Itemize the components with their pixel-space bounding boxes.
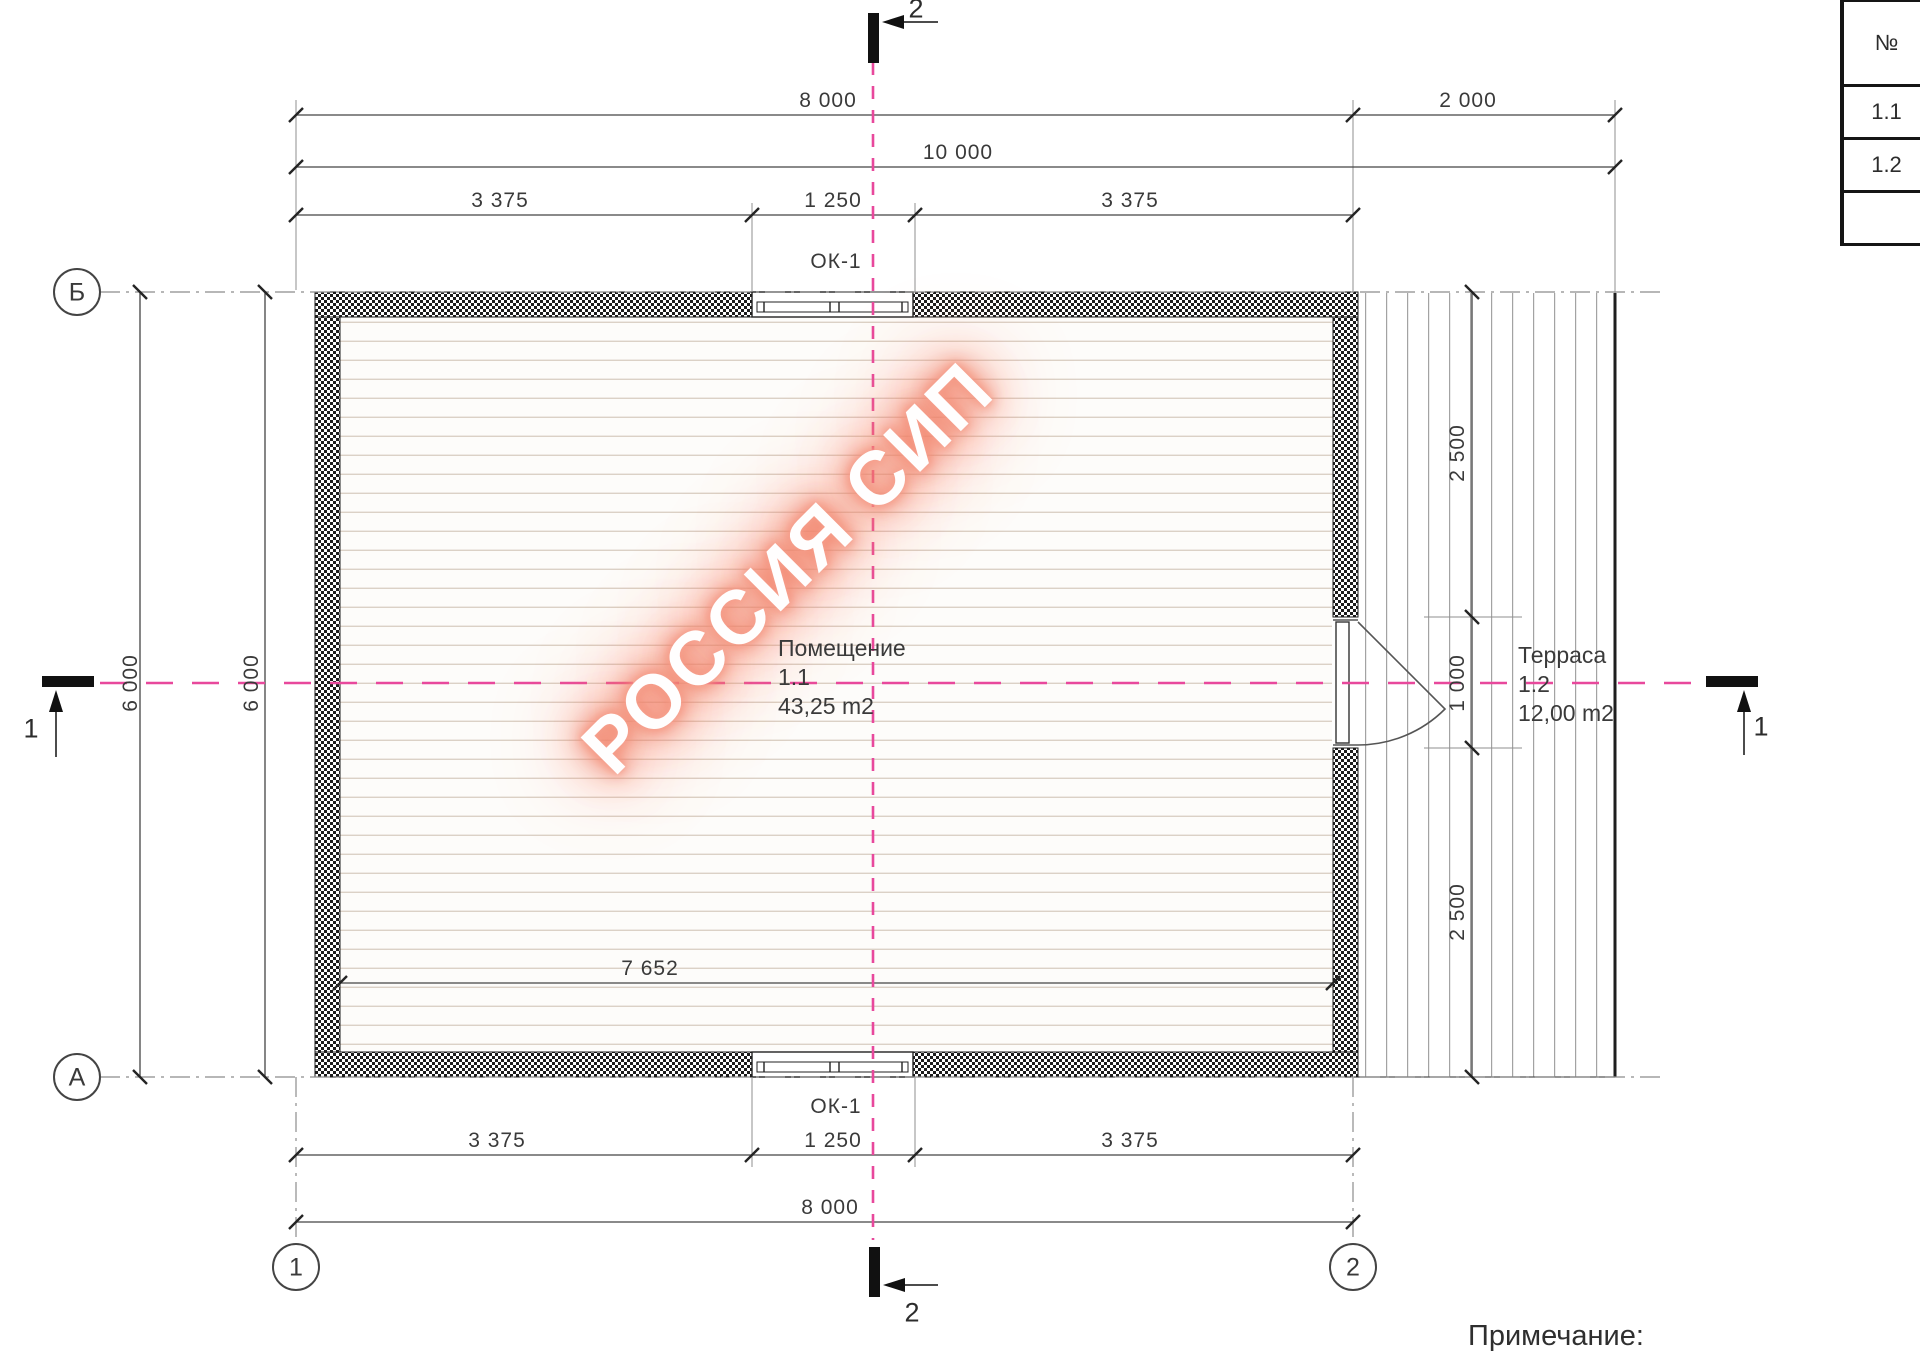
section-label-2-bottom: 2 [904,1298,919,1329]
section-label-1-left: 1 [23,714,38,745]
dim-top-8000: 8 000 [799,89,857,113]
dim-top-3375-right: 3 375 [1101,189,1159,213]
dim-interior-7652: 7 652 [621,957,679,981]
window-top [752,292,913,317]
window-bottom [752,1052,913,1077]
spec-table-row-2: 1.2 [1844,140,1920,193]
dim-top-3375-left: 3 375 [471,189,529,213]
axis-label-a: А [69,1064,86,1093]
dim-top-10000: 10 000 [923,141,993,165]
dim-top-1250: 1 250 [804,189,862,213]
note-heading: Примечание: [1468,1320,1644,1353]
section-label-1-right: 1 [1753,712,1768,743]
axis-label-1: 1 [289,1254,303,1283]
room-terrace-number: 1.2 [1518,670,1614,699]
axis-label-2: 2 [1346,1254,1360,1283]
dim-left-6000-outer: 6 000 [119,654,143,712]
spec-table-row-1: 1.1 [1844,87,1920,140]
axis-label-b: Б [69,279,85,308]
spec-table: № 1.1 1.2 [1840,0,1920,246]
dim-left-6000-inner: 6 000 [240,654,264,712]
section-marker-1-left [42,676,94,757]
dim-top-2000: 2 000 [1439,89,1497,113]
window-tag-top: ОК-1 [810,250,861,274]
spec-table-row-empty [1844,193,1920,246]
spec-table-row-2-text: 1.2 [1871,152,1902,178]
dim-bottom-8000: 8 000 [801,1196,859,1220]
window-tag-bottom: ОК-1 [810,1095,861,1119]
dim-bottom-3375-left: 3 375 [468,1129,526,1153]
dim-right-2500-top: 2 500 [1446,424,1470,482]
room-main-name: Помещение [778,634,906,663]
spec-table-header-text: № [1875,30,1899,56]
section-marker-1-right [1706,676,1758,755]
room-main-area: 43,25 m2 [778,692,906,721]
dim-right-1000: 1 000 [1446,654,1470,712]
dim-bottom-3375-right: 3 375 [1101,1129,1159,1153]
room-label-terrace: Терраса 1.2 12,00 m2 [1518,641,1614,728]
section-marker-2-bottom [869,1247,938,1297]
floor-plan-drawing [0,0,1920,1358]
room-terrace-name: Терраса [1518,641,1614,670]
floor-plan-sheet: РОССИЯ СИП 8 000 2 000 10 000 3 375 1 25… [0,0,1920,1358]
dim-bottom-1250: 1 250 [804,1129,862,1153]
spec-table-header: № [1844,2,1920,87]
room-label-main: Помещение 1.1 43,25 m2 [778,634,906,721]
room-terrace-area: 12,00 m2 [1518,699,1614,728]
section-marker-2-top [868,13,938,63]
room-main-number: 1.1 [778,663,906,692]
spec-table-row-1-text: 1.1 [1871,99,1902,125]
section-label-2-top: 2 [908,0,923,25]
dim-right-2500-bottom: 2 500 [1446,883,1470,941]
